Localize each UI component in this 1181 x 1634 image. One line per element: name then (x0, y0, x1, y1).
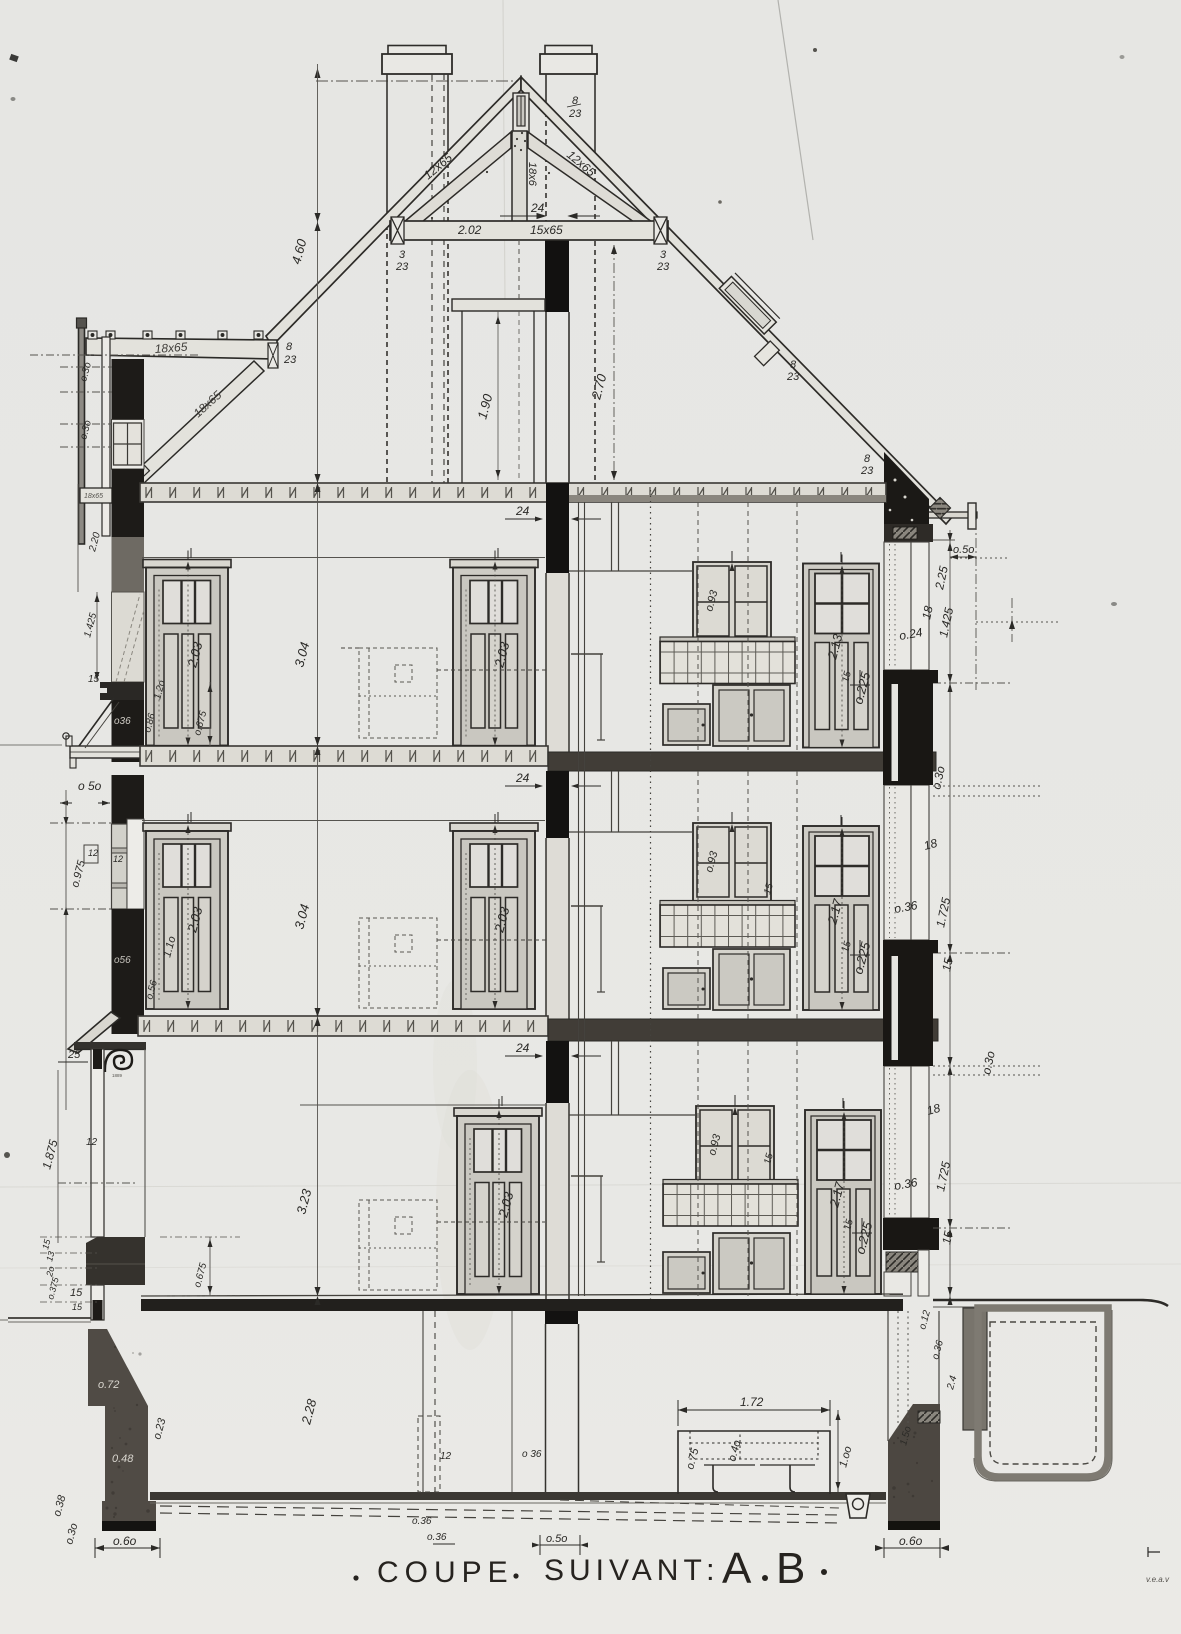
svg-text:15x65: 15x65 (530, 223, 563, 237)
svg-text:23: 23 (656, 261, 670, 273)
svg-text:o.72: o.72 (98, 1379, 119, 1391)
svg-text:18x6: 18x6 (526, 162, 538, 187)
svg-text:23: 23 (568, 108, 582, 120)
svg-text:o.5o: o.5o (953, 544, 974, 556)
svg-text:SUIVANT: SUIVANT (544, 1554, 707, 1587)
svg-text:1889: 1889 (112, 1073, 123, 1078)
svg-text:12: 12 (86, 1137, 98, 1148)
svg-text:0.48: 0.48 (112, 1453, 134, 1465)
svg-text:15: 15 (72, 1302, 83, 1312)
svg-text:15: 15 (70, 1287, 83, 1299)
svg-text:o.36: o.36 (427, 1532, 447, 1543)
svg-text:o56: o56 (114, 955, 131, 966)
svg-text:o.6o: o.6o (113, 1534, 137, 1548)
svg-text:o36: o36 (114, 716, 131, 727)
svg-text:12: 12 (440, 1451, 452, 1462)
svg-text:o.5o: o.5o (546, 1533, 567, 1545)
svg-text:8: 8 (864, 453, 871, 465)
svg-text:18x65: 18x65 (154, 340, 188, 356)
svg-text:o.36: o.36 (412, 1516, 432, 1527)
svg-text:24: 24 (530, 201, 545, 215)
svg-text:8: 8 (286, 341, 293, 353)
svg-text:o.6o: o.6o (899, 1534, 923, 1548)
svg-text:24: 24 (515, 771, 530, 785)
svg-text:3: 3 (399, 249, 406, 261)
svg-text:o 36: o 36 (522, 1449, 542, 1460)
svg-text:23: 23 (786, 371, 800, 383)
svg-text:23: 23 (860, 465, 874, 477)
svg-text:24: 24 (515, 1041, 530, 1055)
svg-text:B: B (776, 1544, 805, 1593)
svg-text:8: 8 (790, 359, 797, 371)
svg-text:12: 12 (113, 854, 123, 864)
svg-text:23: 23 (283, 354, 297, 366)
svg-text::: : (706, 1552, 715, 1587)
svg-text:o 5o: o 5o (78, 779, 102, 793)
svg-text:24: 24 (515, 504, 530, 518)
svg-text:COUPE: COUPE (377, 1556, 514, 1589)
svg-text:12: 12 (88, 848, 98, 858)
svg-text:v.e.a.v: v.e.a.v (1146, 1575, 1170, 1584)
svg-text:18x65: 18x65 (84, 493, 103, 500)
svg-text:A: A (722, 1544, 752, 1593)
svg-text:25: 25 (67, 1049, 81, 1061)
svg-text:2.02: 2.02 (457, 223, 482, 237)
svg-text:3: 3 (660, 249, 667, 261)
svg-text:1.72: 1.72 (740, 1395, 764, 1409)
svg-text:23: 23 (395, 261, 409, 273)
